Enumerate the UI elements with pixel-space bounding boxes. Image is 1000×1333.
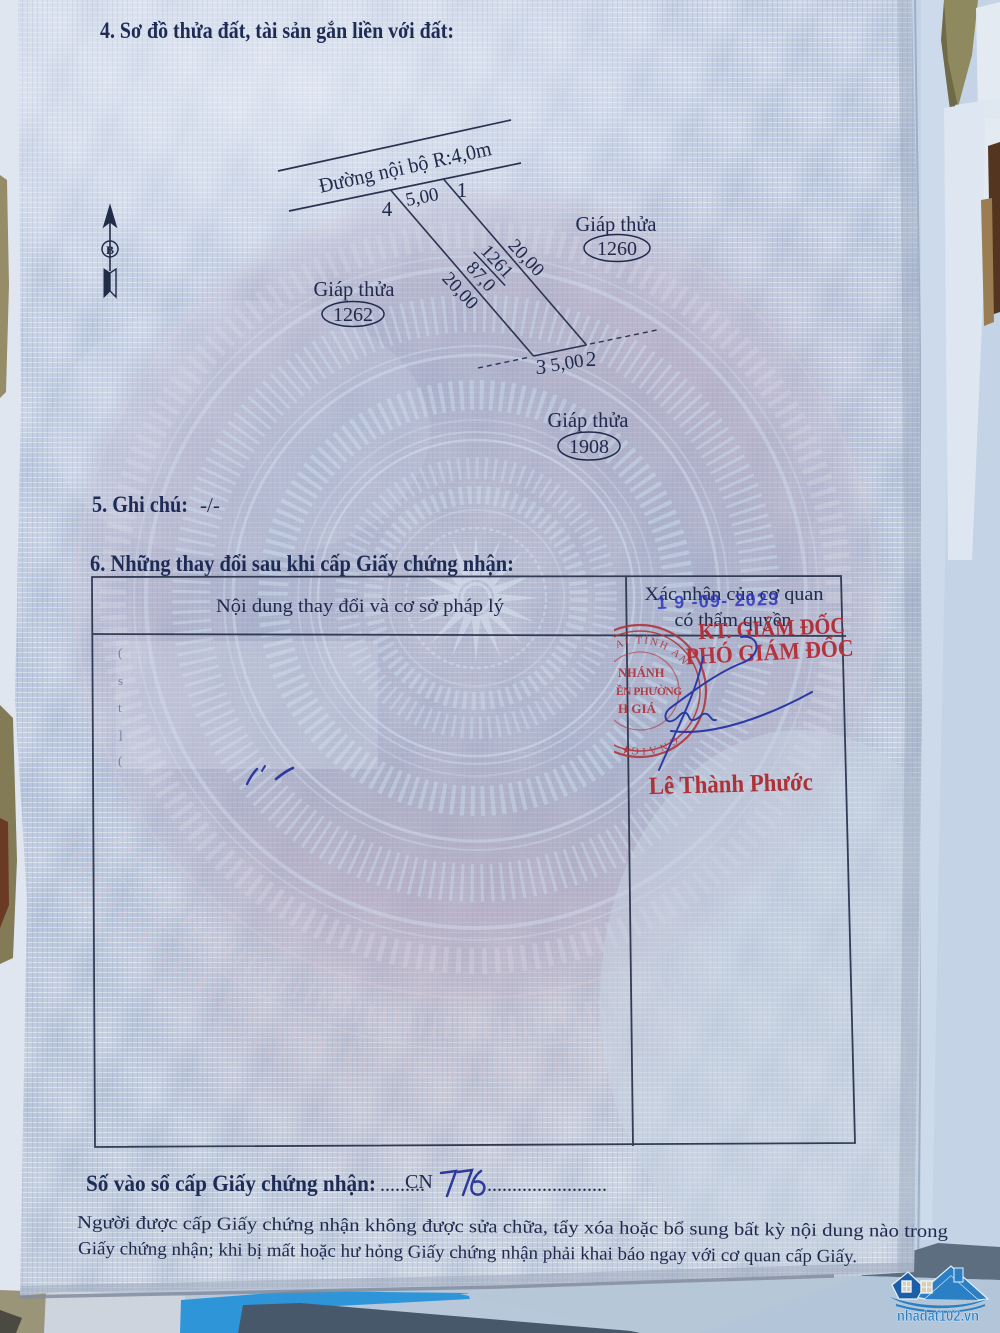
svg-text:nhadat102.vn: nhadat102.vn <box>897 1308 979 1325</box>
svg-text:Số vào sổ cấp Giấy chứng nhận:: Số vào sổ cấp Giấy chứng nhận: <box>86 1171 376 1196</box>
svg-text:1: 1 <box>457 178 468 202</box>
svg-text:B: B <box>106 243 114 257</box>
svg-text:1262: 1262 <box>333 304 373 326</box>
svg-text:Lê Thành Phước: Lê Thành Phước <box>648 769 813 800</box>
svg-text:t: t <box>118 700 122 715</box>
svg-text:ỀN PHƯỜNG: ỀN PHƯỜNG <box>616 683 682 698</box>
svg-text:6. Những thay đổi sau khi cấp: 6. Những thay đổi sau khi cấp Giấy chứng… <box>90 551 514 576</box>
svg-text:-/-: -/- <box>200 493 220 517</box>
svg-text:]: ] <box>118 727 122 742</box>
svg-text:NHÁNH: NHÁNH <box>618 666 665 680</box>
svg-text:s: s <box>118 673 123 688</box>
svg-text:4. Sơ đồ thửa đất, tài sản gắn: 4. Sơ đồ thửa đất, tài sản gắn liền với … <box>100 18 454 44</box>
svg-text:CN: CN <box>405 1171 433 1193</box>
svg-text:5. Ghi chú:: 5. Ghi chú: <box>92 492 188 517</box>
svg-text:Nội dung thay đổi và cơ sở phá: Nội dung thay đổi và cơ sở pháp lý <box>216 596 505 617</box>
svg-text:1260: 1260 <box>597 238 637 260</box>
svg-text:Giáp thửa: Giáp thửa <box>314 277 396 301</box>
svg-text:★: ★ <box>621 743 632 757</box>
svg-text:1 9 -09- 2023: 1 9 -09- 2023 <box>656 589 779 613</box>
svg-text:........................: ........................ <box>487 1174 607 1196</box>
svg-text:Giáp thửa: Giáp thửa <box>548 408 630 432</box>
svg-text:4: 4 <box>382 197 393 221</box>
svg-text:Giáp thửa: Giáp thửa <box>576 212 658 236</box>
svg-text:H GIÁ: H GIÁ <box>618 701 657 716</box>
svg-text:(: ( <box>118 753 122 768</box>
svg-text:2: 2 <box>586 347 597 371</box>
svg-text:3: 3 <box>536 355 547 379</box>
svg-text:(: ( <box>118 645 122 660</box>
svg-text:1908: 1908 <box>569 436 609 458</box>
